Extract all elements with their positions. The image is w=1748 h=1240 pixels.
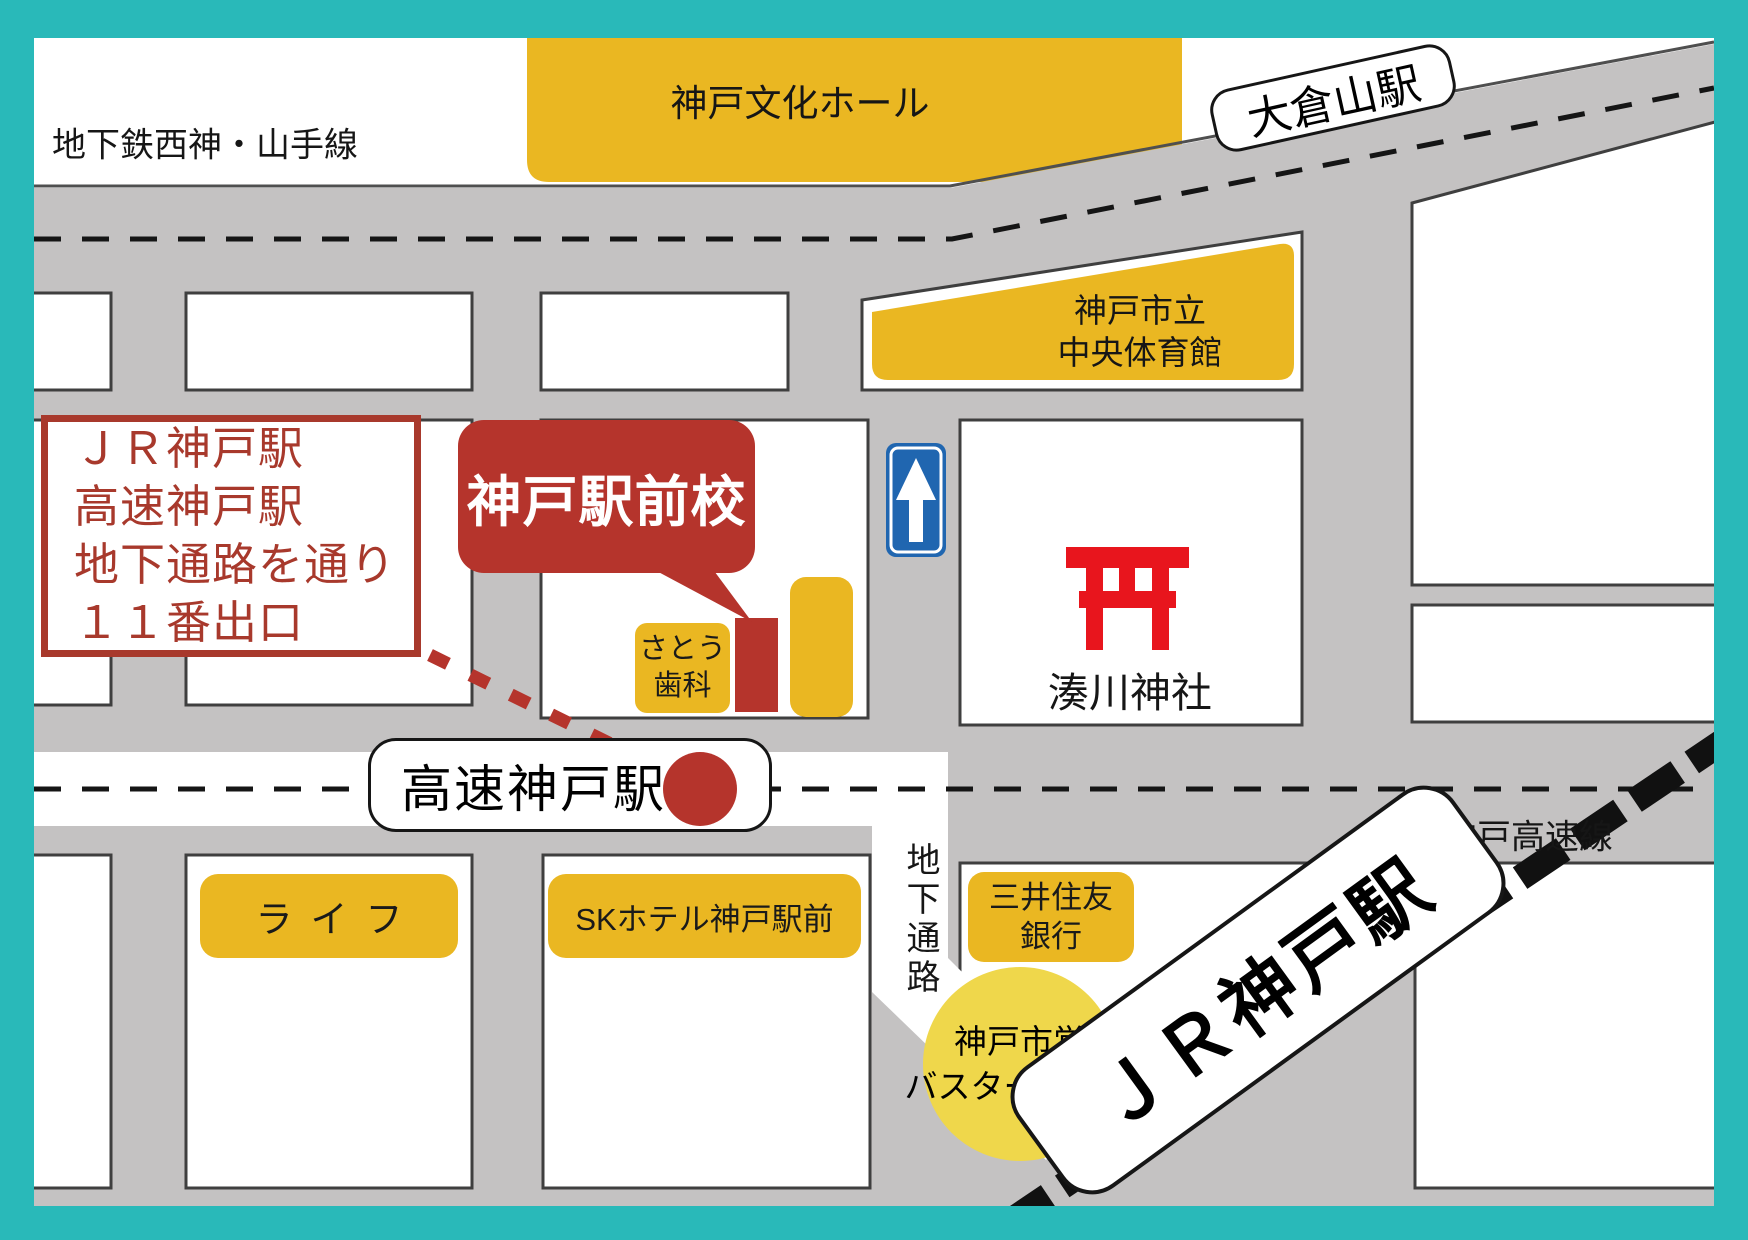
bank-line2: 銀行 <box>1020 917 1082 956</box>
bank-line1: 三井住友 <box>989 878 1113 917</box>
block <box>541 293 788 390</box>
dental-clinic-box: さとう 歯科 <box>635 623 730 713</box>
dental-line1: さとう <box>639 631 726 668</box>
gym-label-line1: 神戸市立 <box>1074 284 1206 332</box>
school-building <box>735 618 778 712</box>
frame-right <box>1714 0 1748 1240</box>
info-line: １１番出口 <box>74 594 414 652</box>
yellow-building <box>790 577 853 717</box>
frame-left <box>0 0 34 1240</box>
life-supermarket-box: ライフ <box>200 874 458 958</box>
culture-hall-label: 神戸文化ホール <box>671 73 930 127</box>
info-line: 地下通路を通り <box>74 536 414 594</box>
school-callout: 神戸駅前校 <box>458 420 755 573</box>
shrine-label: 湊川神社 <box>1048 659 1212 719</box>
station-marker-dot <box>663 752 737 826</box>
info-line: 高速神戸駅 <box>74 478 414 536</box>
subway-line-label: 地下鉄西神・山手線 <box>52 118 358 167</box>
dental-line2: 歯科 <box>653 668 711 705</box>
directions-info-box: ＪＲ神戸駅 高速神戸駅 地下通路を通り １１番出口 <box>41 415 421 657</box>
info-line: ＪＲ神戸駅 <box>74 420 414 478</box>
passage-label: 地下通路 <box>896 842 945 998</box>
access-map: 地下鉄西神・山手線 神戸文化ホール 大倉山駅 神戸市立 中央体育館 ＪＲ神戸駅 … <box>0 0 1748 1240</box>
frame-top <box>0 0 1748 38</box>
bank-box: 三井住友 銀行 <box>968 872 1134 962</box>
gym-label-line2: 中央体育館 <box>1058 326 1223 374</box>
sk-hotel-box: SKホテル神戸駅前 <box>548 874 861 958</box>
one-way-sign <box>886 443 946 557</box>
block <box>1412 605 1730 722</box>
frame-bottom <box>0 1206 1748 1240</box>
block <box>186 293 472 390</box>
